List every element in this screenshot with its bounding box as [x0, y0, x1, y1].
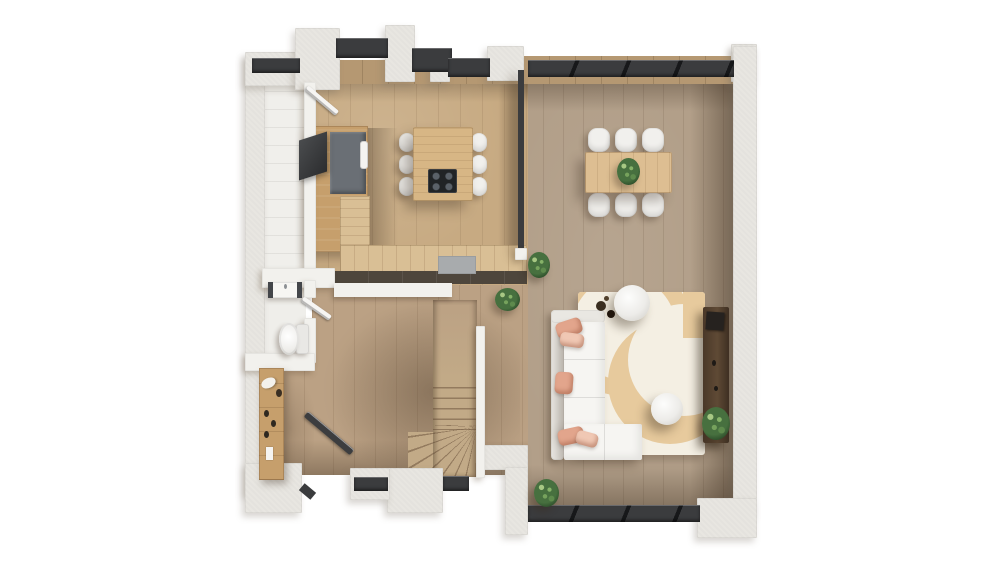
floor-plant-living-bottom: [534, 479, 559, 507]
floor-plant-living-edge: [495, 288, 520, 311]
partition-end-cap: [515, 248, 527, 260]
round-coffee-table-small: [651, 393, 683, 425]
wall-right: [733, 46, 757, 516]
dining-chair: [642, 128, 664, 152]
bar-stool: [471, 133, 487, 152]
decor-tray-item: [604, 296, 609, 301]
dining-table-plant: [617, 158, 640, 185]
decor-tray-item: [607, 310, 615, 318]
floorplan-canvas: [0, 0, 1000, 563]
kitchen-window-3: [448, 58, 490, 77]
glass-partition-kitchen-dining: [518, 70, 524, 252]
washbasin-cap-right: [297, 282, 302, 298]
kitchen-window-2: [412, 48, 452, 72]
sideboard-decor: [714, 386, 718, 391]
washbasin-cap-left: [268, 282, 273, 298]
kitchen-sink: [360, 141, 368, 169]
toilet-bowl: [279, 323, 299, 355]
wall-pillar-1: [295, 28, 340, 90]
dining-chair: [588, 128, 610, 152]
bar-stool: [471, 177, 487, 196]
sofa-pillow: [554, 371, 573, 394]
island-cooktop: [428, 169, 457, 193]
decor-tray-item: [596, 301, 606, 311]
wall-pillar-bottom: [387, 468, 443, 513]
floor-plant-partition: [528, 252, 550, 278]
round-coffee-table-large: [614, 285, 650, 321]
dining-chair: [615, 128, 637, 152]
wardrobe-shoe: [271, 420, 276, 427]
sideboard-decor: [712, 360, 716, 366]
counter-peninsula-horizontal: [340, 245, 527, 272]
bar-stool: [471, 155, 487, 174]
wall-corner-bottom-right: [697, 498, 757, 538]
wardrobe-item: [276, 389, 282, 397]
rug-right-band: [683, 292, 705, 338]
sideboard-tv-object: [705, 311, 724, 330]
washbasin-faucet: [284, 284, 287, 289]
counter-gray-step: [438, 256, 476, 274]
dining-window-band: [528, 60, 734, 77]
wall-stub-bottom-2: [505, 467, 528, 535]
corner-window-top-left: [252, 58, 300, 73]
wardrobe-label: [266, 447, 273, 460]
wall-wc-right-upper: [304, 280, 316, 298]
winder-staircase: [433, 300, 477, 477]
kitchen-window-1: [336, 38, 388, 58]
wardrobe-shoe: [264, 410, 269, 417]
hall-window-left: [354, 477, 388, 491]
dining-chair: [588, 193, 610, 217]
wall-pillar-2: [385, 25, 415, 82]
stair-spine-wall: [476, 326, 485, 478]
dining-chair: [615, 193, 637, 217]
wardrobe-shoe: [264, 431, 269, 438]
counter-knee-wall: [334, 283, 452, 297]
sideboard-plant: [702, 407, 730, 440]
dining-chair: [642, 193, 664, 217]
living-sliding-glass-door: [528, 505, 700, 522]
hall-window-right: [443, 476, 469, 491]
